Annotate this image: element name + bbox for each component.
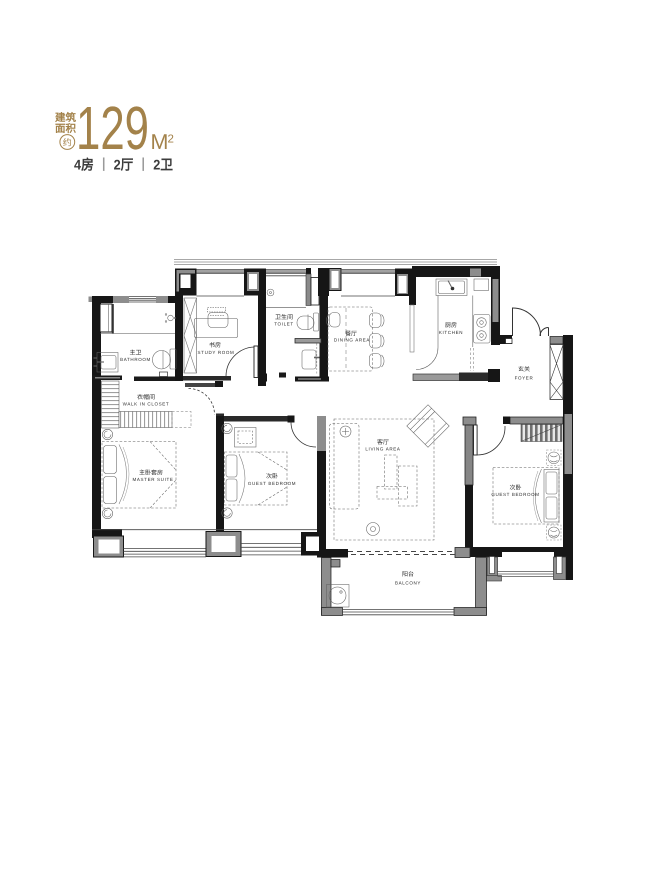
svg-text:GUEST BEDROOM: GUEST BEDROOM [491, 492, 539, 497]
svg-text:2: 2 [168, 134, 174, 146]
svg-text:玄关: 玄关 [518, 365, 530, 373]
svg-text:卫生间: 卫生间 [275, 313, 293, 321]
svg-text:面积: 面积 [55, 123, 76, 135]
svg-text:主卫: 主卫 [129, 349, 141, 357]
svg-text:书房: 书房 [209, 341, 221, 349]
svg-text:餐厅: 餐厅 [345, 330, 357, 338]
svg-text:GUEST BEDROOM: GUEST BEDROOM [248, 481, 296, 486]
svg-text:BALCONY: BALCONY [395, 581, 421, 586]
svg-text:客厅: 客厅 [377, 438, 389, 446]
svg-text:KITCHEN: KITCHEN [439, 330, 463, 335]
svg-text:FOYER: FOYER [515, 376, 534, 381]
svg-text:WALK IN CLOSET: WALK IN CLOSET [123, 402, 170, 407]
svg-text:LIVING AREA: LIVING AREA [365, 447, 400, 452]
svg-text:主卧套房: 主卧套房 [139, 469, 163, 477]
svg-text:BATHROOM: BATHROOM [120, 357, 151, 362]
svg-text:次卧: 次卧 [509, 484, 521, 492]
svg-text:衣帽间: 衣帽间 [137, 393, 155, 401]
svg-text:阳台: 阳台 [402, 570, 414, 578]
svg-text:129: 129 [76, 94, 149, 162]
svg-text:次卧: 次卧 [266, 472, 278, 480]
svg-text:4房 丨 2厅 丨 2卫: 4房 丨 2厅 丨 2卫 [74, 157, 173, 173]
svg-text:约: 约 [63, 137, 72, 147]
svg-text:TOILET: TOILET [274, 322, 294, 327]
svg-text:M: M [151, 130, 169, 154]
svg-text:MASTER SUITE: MASTER SUITE [132, 477, 173, 482]
svg-text:DINING AREA: DINING AREA [334, 338, 370, 343]
svg-text:STUDY ROOM: STUDY ROOM [198, 350, 235, 355]
svg-text:厨房: 厨房 [445, 321, 457, 329]
